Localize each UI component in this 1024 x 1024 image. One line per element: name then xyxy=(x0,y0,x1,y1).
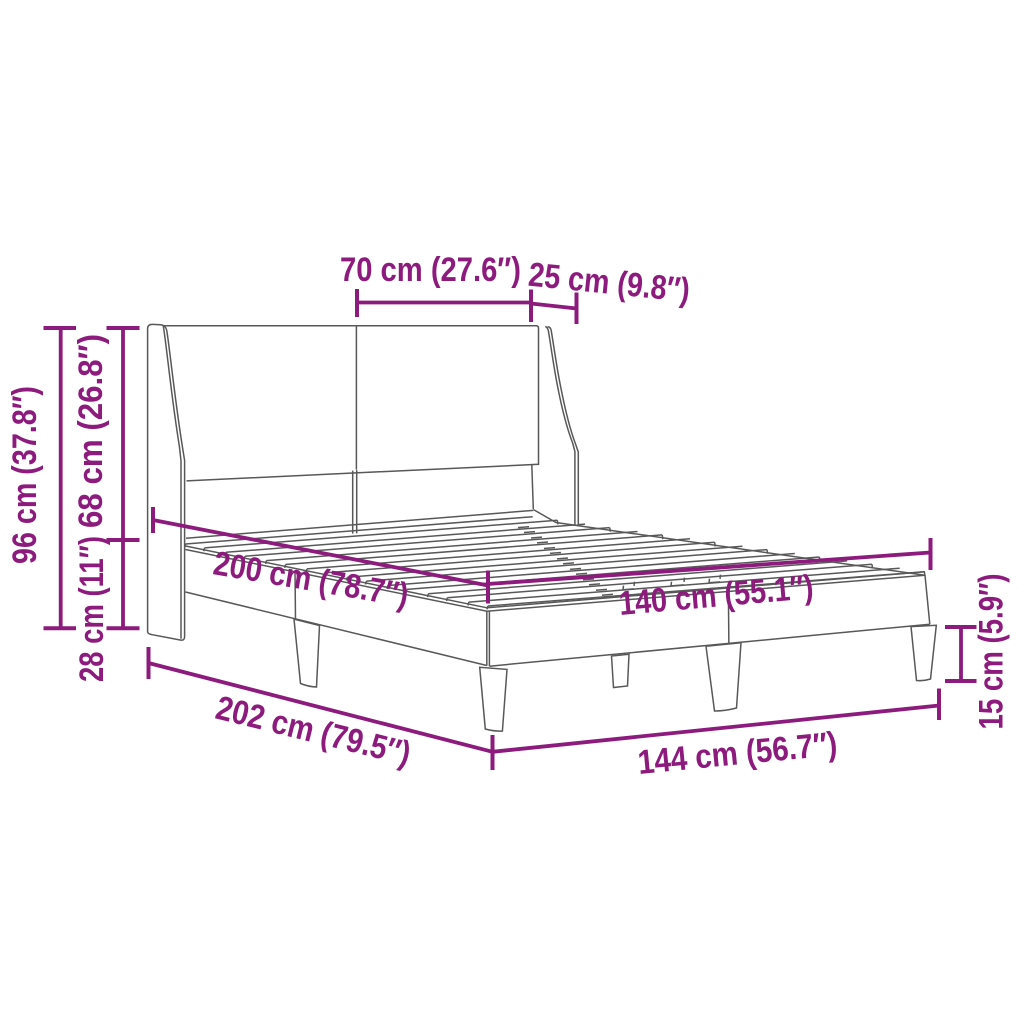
svg-text:28 cm (11″): 28 cm (11″) xyxy=(73,536,111,682)
svg-text:68 cm (26.8″): 68 cm (26.8″) xyxy=(72,334,110,528)
svg-text:70 cm (27.6″): 70 cm (27.6″) xyxy=(340,251,521,289)
svg-text:15 cm (5.9″): 15 cm (5.9″) xyxy=(973,574,1011,730)
svg-text:96 cm (37.8″): 96 cm (37.8″) xyxy=(6,386,44,564)
